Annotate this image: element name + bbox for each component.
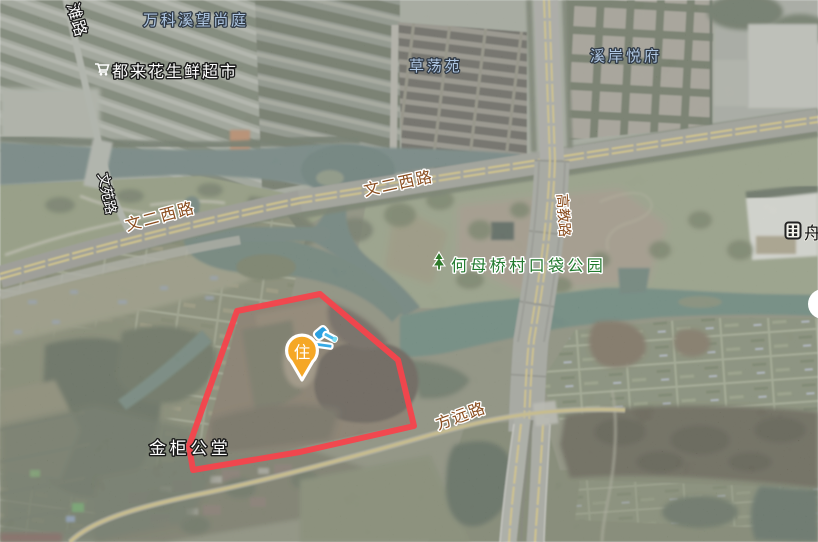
svg-text:住: 住 — [294, 343, 311, 362]
svg-text:万科溪望尚庭: 万科溪望尚庭 — [143, 12, 249, 29]
svg-text:高教路: 高教路 — [553, 193, 573, 238]
svg-text:溪岸悦府: 溪岸悦府 — [590, 48, 662, 65]
svg-text:草荡苑: 草荡苑 — [409, 58, 462, 75]
svg-text:都来花生鲜超市: 都来花生鲜超市 — [112, 63, 238, 81]
svg-text:舟: 舟 — [804, 224, 818, 243]
svg-text:何母桥村口袋公园: 何母桥村口袋公园 — [451, 257, 606, 275]
svg-text:金柜公堂: 金柜公堂 — [149, 439, 231, 458]
